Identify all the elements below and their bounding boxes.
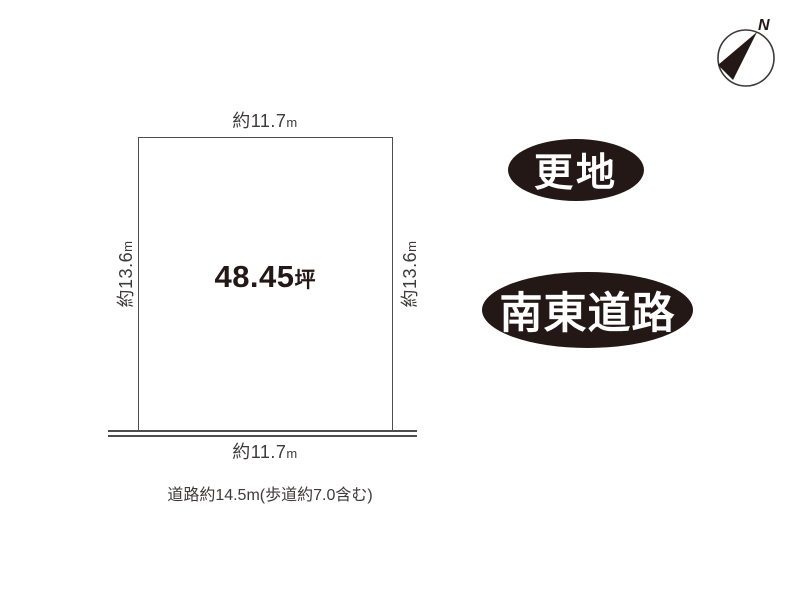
badge-land-status-label: 更地 [534, 142, 618, 198]
dimension-bottom-value: 約11.7 [232, 442, 286, 462]
plot-area-value: 48.45 [214, 259, 294, 294]
dimension-top-value: 約11.7 [232, 111, 286, 131]
dimension-top: 約11.7m [138, 107, 392, 133]
dimension-left-unit: m [120, 241, 135, 252]
compass-north-icon: N [706, 8, 790, 92]
dimension-bottom: 約11.7m [138, 438, 392, 464]
dimension-left-value: 約13.6 [116, 252, 136, 308]
dimension-right-unit: m [404, 241, 419, 252]
road-edge-line-lower [108, 435, 417, 437]
badge-road-direction: 南東道路 [482, 272, 693, 348]
plot-area-label: 48.45坪 [138, 259, 392, 295]
dimension-right: 約13.6m [396, 214, 418, 334]
plot-area-unit: 坪 [295, 269, 316, 292]
badge-road-direction-label: 南東道路 [500, 279, 676, 341]
dimension-top-unit: m [286, 115, 297, 130]
compass-north-label: N [758, 17, 770, 34]
dimension-bottom-unit: m [286, 446, 297, 461]
road-edge-line-upper [108, 430, 417, 432]
compass-needle [718, 32, 757, 80]
badge-land-status: 更地 [508, 139, 644, 201]
road-note: 道路約14.5m(歩道約7.0含む) [20, 481, 520, 505]
dimension-left: 約13.6m [112, 214, 134, 334]
dimension-right-value: 約13.6 [400, 252, 420, 308]
